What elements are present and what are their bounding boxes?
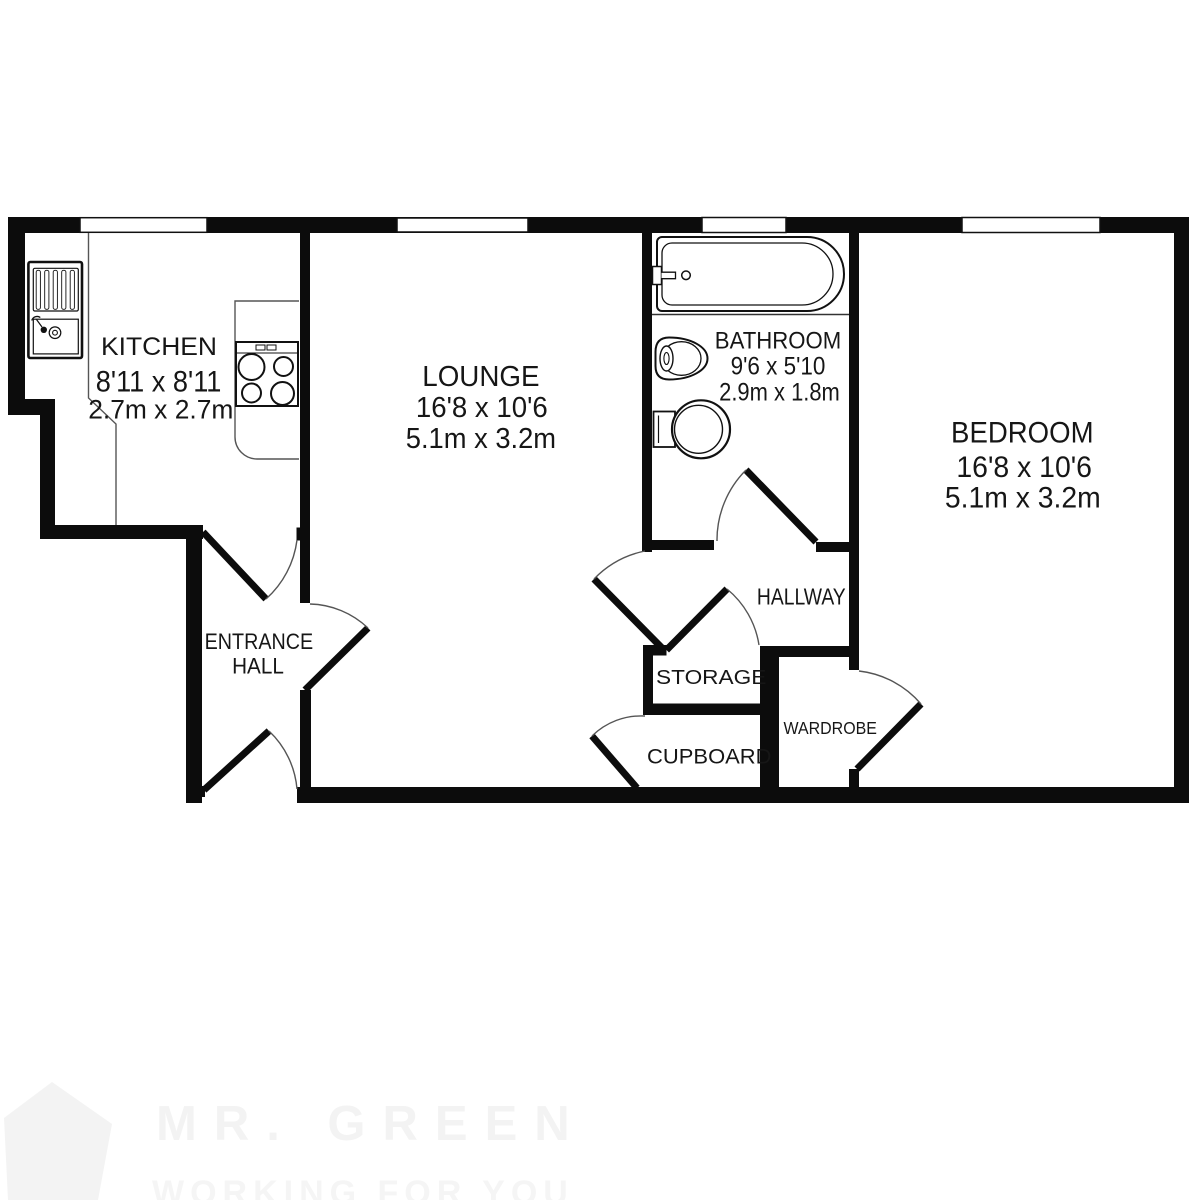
svg-text:HALLWAY: HALLWAY [757,583,846,609]
svg-text:BATHROOM: BATHROOM [715,328,841,355]
svg-text:ENTRANCE: ENTRANCE [205,629,314,654]
svg-text:KITCHEN: KITCHEN [101,333,217,361]
svg-text:STORAGE: STORAGE [656,667,766,689]
svg-text:LOUNGE: LOUNGE [422,361,539,393]
svg-text:2.7m x 2.7m: 2.7m x 2.7m [88,395,233,425]
svg-text:5.1m x 3.2m: 5.1m x 3.2m [945,482,1101,515]
svg-text:BEDROOM: BEDROOM [951,416,1094,449]
svg-text:HALL: HALL [232,654,284,679]
svg-text:16'8 x 10'6: 16'8 x 10'6 [416,392,548,424]
svg-text:CUPBOARD: CUPBOARD [647,746,772,769]
svg-text:16'8 x 10'6: 16'8 x 10'6 [956,451,1092,484]
svg-text:MR. GREEN: MR. GREEN [156,1097,587,1151]
svg-text:9'6 x 5'10: 9'6 x 5'10 [731,353,826,381]
svg-text:2.9m x 1.8m: 2.9m x 1.8m [719,378,840,406]
svg-text:WORKING FOR YOU: WORKING FOR YOU [152,1174,574,1200]
svg-text:5.1m x 3.2m: 5.1m x 3.2m [406,423,556,455]
svg-text:WARDROBE: WARDROBE [784,718,877,738]
